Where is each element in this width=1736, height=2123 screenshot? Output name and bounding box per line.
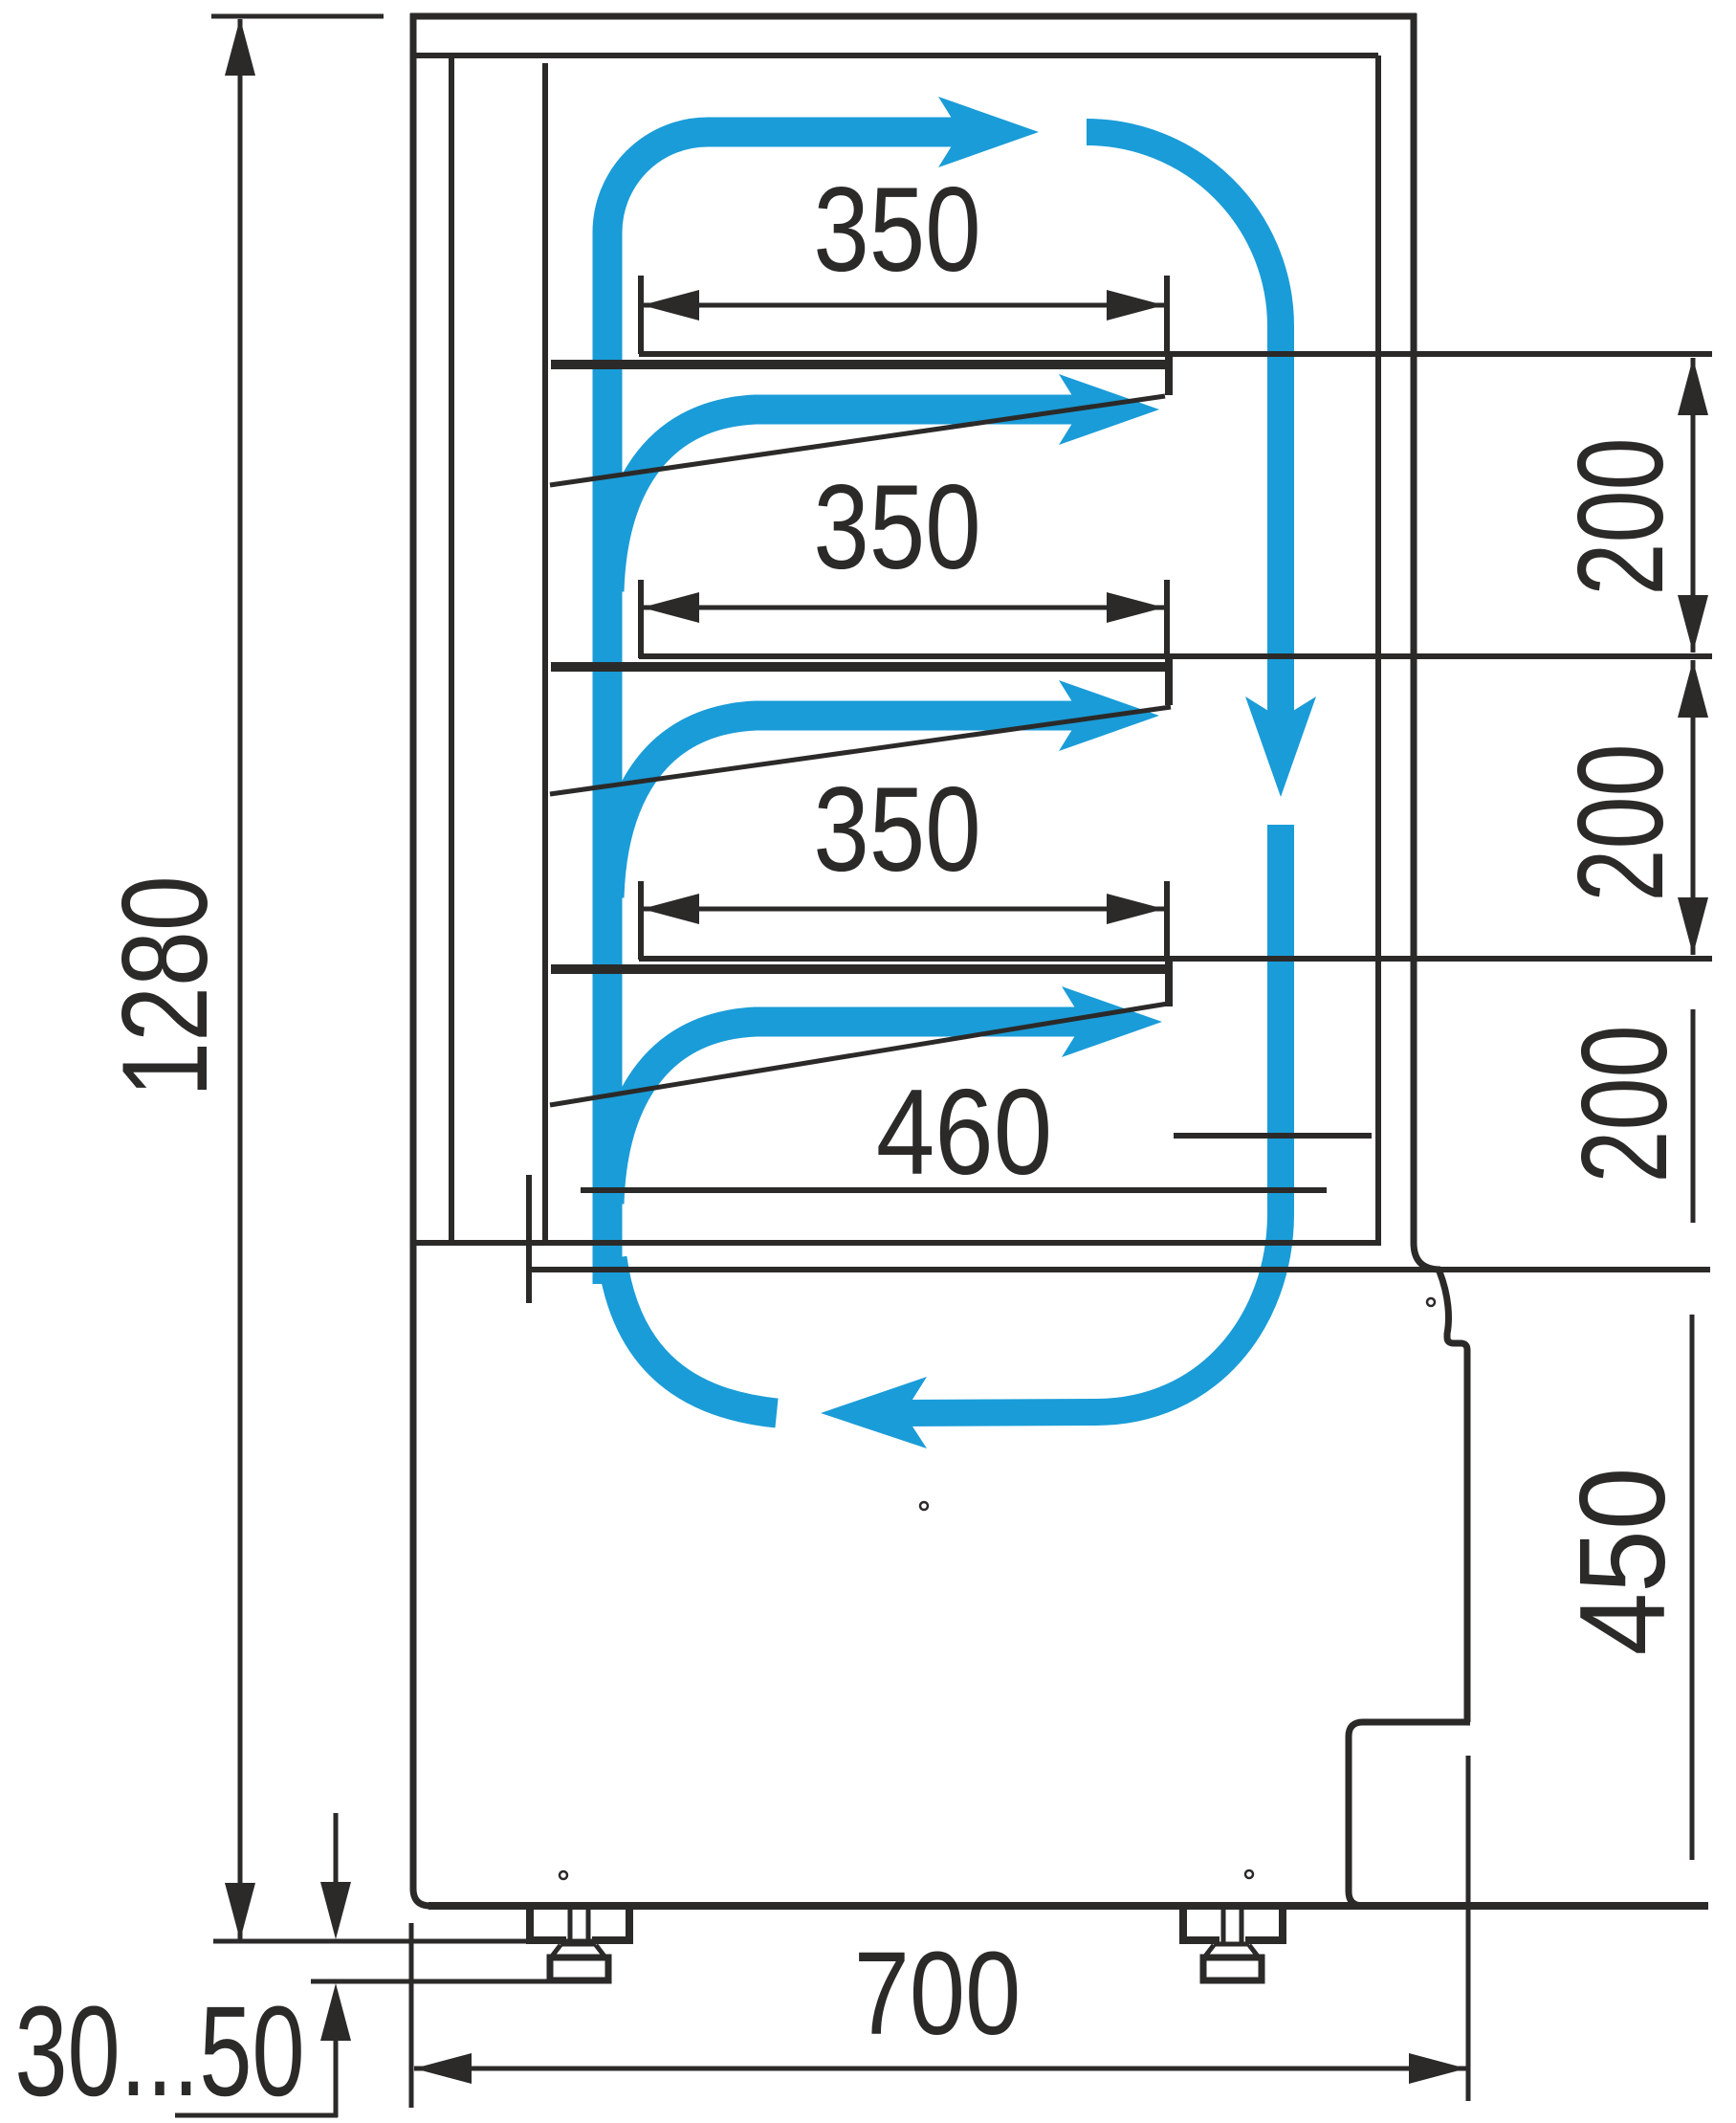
- svg-text:450: 450: [1554, 1467, 1690, 1655]
- svg-text:200: 200: [1553, 743, 1689, 901]
- svg-text:460: 460: [876, 1065, 1052, 1201]
- svg-text:200: 200: [1557, 1025, 1693, 1183]
- svg-text:350: 350: [813, 461, 980, 594]
- svg-text:350: 350: [813, 164, 980, 297]
- svg-text:700: 700: [854, 1929, 1021, 2060]
- svg-text:350: 350: [813, 763, 980, 896]
- svg-text:1280: 1280: [97, 875, 232, 1097]
- svg-text:30...50: 30...50: [14, 1979, 304, 2122]
- svg-text:200: 200: [1553, 437, 1689, 595]
